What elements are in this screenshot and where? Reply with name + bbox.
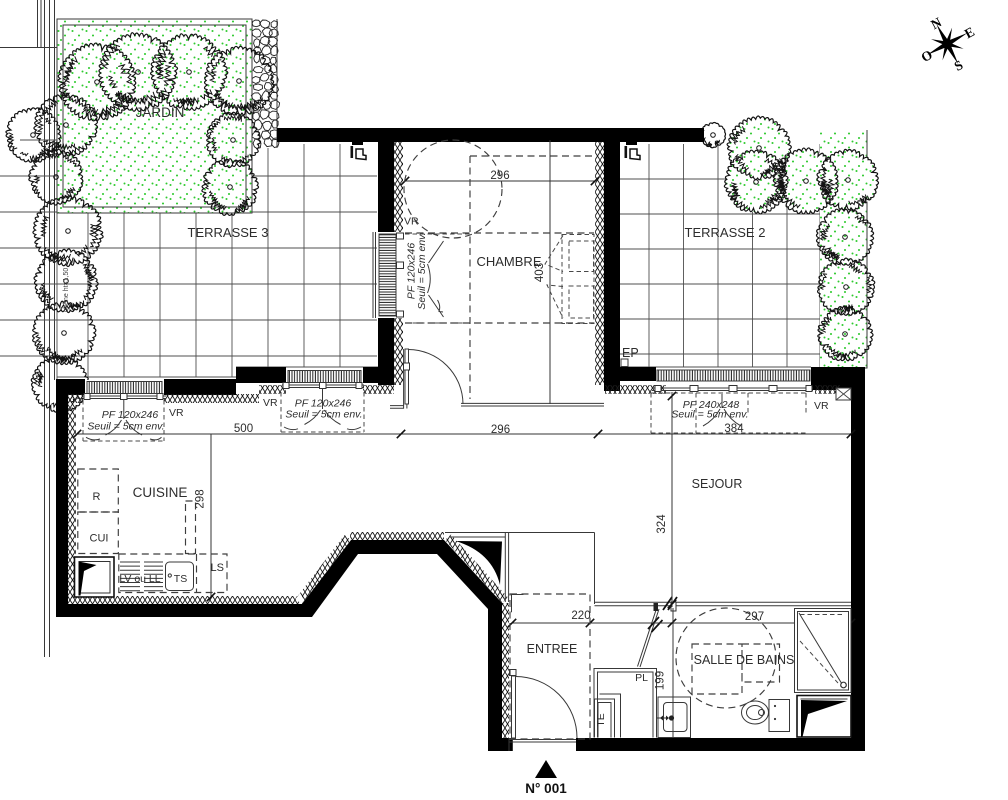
svg-text:EP: EP [622, 346, 639, 360]
svg-text:ENTREE: ENTREE [527, 642, 578, 656]
svg-text:SALLE DE BAINS: SALLE DE BAINS [694, 653, 795, 667]
svg-text:CUI: CUI [90, 533, 109, 545]
svg-text:Seuil = 5cm env.: Seuil = 5cm env. [285, 409, 362, 421]
svg-text:SEJOUR: SEJOUR [692, 477, 743, 491]
svg-text:LS: LS [211, 562, 224, 574]
svg-text:220: 220 [571, 610, 590, 622]
svg-text:403: 403 [534, 263, 546, 282]
svg-text:199: 199 [655, 671, 667, 690]
svg-text:LV ou LL: LV ou LL [119, 573, 160, 585]
svg-text:TERRASSE 3: TERRASSE 3 [188, 225, 269, 240]
svg-text:297: 297 [745, 611, 764, 623]
svg-text:O: O [919, 47, 935, 65]
svg-text:384: 384 [724, 423, 744, 435]
svg-text:PF 120x246: PF 120x246 [102, 409, 159, 421]
svg-text:298: 298 [195, 489, 207, 508]
svg-text:TS: TS [174, 573, 187, 585]
svg-text:Seuil = 5cm env.: Seuil = 5cm env. [87, 421, 164, 433]
svg-text:VR: VR [169, 407, 184, 419]
svg-text:296: 296 [491, 424, 510, 436]
svg-text:TE: TE [595, 713, 607, 726]
svg-text:CHAMBRE: CHAMBRE [476, 254, 541, 269]
svg-text:VR: VR [263, 397, 278, 409]
svg-text:324: 324 [656, 514, 668, 534]
svg-text:S: S [952, 57, 966, 74]
svg-text:N: N [928, 14, 944, 32]
svg-text:N° 001: N° 001 [525, 781, 567, 796]
svg-text:TERRASSE 2: TERRASSE 2 [685, 225, 766, 240]
svg-text:Seuil = 5cm env.: Seuil = 5cm env. [671, 409, 748, 421]
svg-text:JARDIN: JARDIN [136, 105, 185, 120]
svg-text:PL: PL [635, 672, 648, 684]
svg-text:VR: VR [814, 400, 829, 412]
svg-text:E: E [962, 24, 977, 41]
svg-text:CUISINE: CUISINE [133, 485, 188, 500]
svg-text:chêne ht=1,50: chêne ht=1,50 [63, 268, 70, 313]
svg-text:500: 500 [234, 423, 253, 435]
svg-text:296: 296 [490, 170, 509, 182]
svg-text:Seuil = 5cm env.: Seuil = 5cm env. [416, 232, 428, 309]
svg-text:R: R [93, 491, 101, 503]
svg-text:VR: VR [404, 216, 419, 228]
